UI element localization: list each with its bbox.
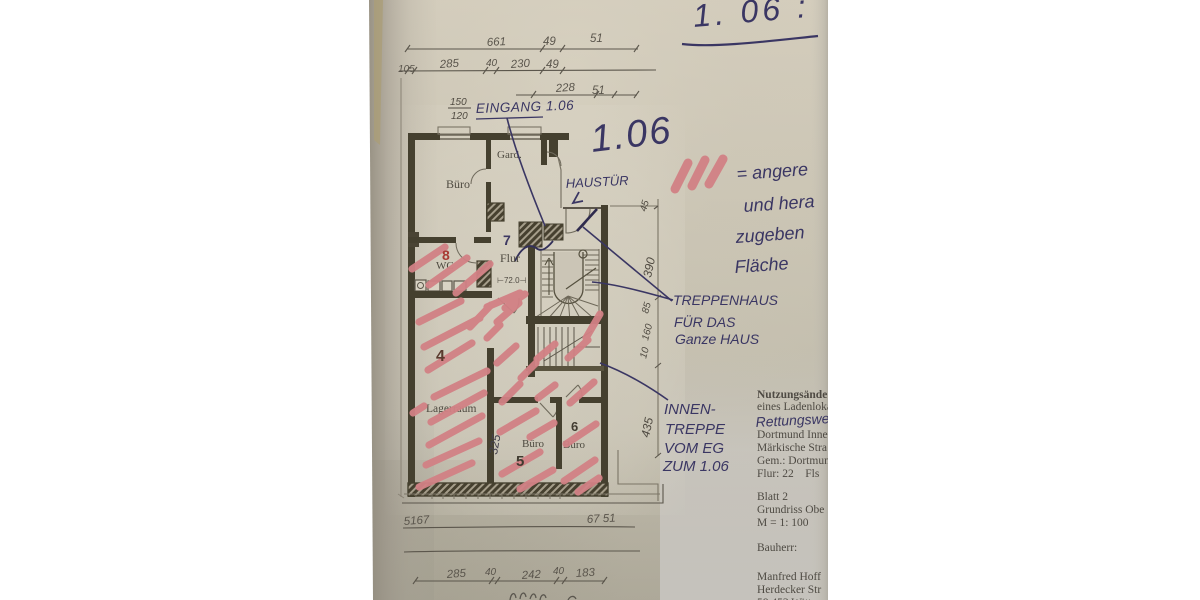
svg-text:5167: 5167 — [403, 514, 430, 528]
svg-text:M = 1: 100: M = 1: 100 — [757, 517, 809, 529]
svg-text:183: 183 — [575, 567, 596, 580]
svg-text:6: 6 — [571, 419, 578, 434]
svg-text:40: 40 — [486, 58, 498, 69]
svg-text:ZUM 1.06: ZUM 1.06 — [662, 458, 730, 475]
svg-text:FÜR DAS: FÜR DAS — [674, 313, 736, 330]
svg-text:49: 49 — [546, 59, 559, 71]
svg-text:242: 242 — [520, 569, 542, 582]
svg-text:5: 5 — [516, 453, 524, 470]
svg-text:40: 40 — [553, 566, 565, 577]
svg-text:Fläche: Fläche — [734, 253, 789, 277]
svg-text:4: 4 — [436, 348, 445, 365]
svg-text:Manfred Hoff: Manfred Hoff — [757, 571, 821, 583]
svg-text:150: 150 — [450, 97, 467, 108]
svg-text:⊢72.0⊣: ⊢72.0⊣ — [497, 276, 527, 285]
svg-text:TREPPE: TREPPE — [665, 421, 726, 438]
svg-text:7: 7 — [503, 232, 511, 248]
svg-text:120: 120 — [451, 111, 468, 122]
svg-text:Flur: Flur — [500, 251, 520, 265]
svg-text:105: 105 — [398, 64, 415, 75]
svg-text:eines Ladenloka: eines Ladenloka — [757, 401, 832, 413]
svg-text:Dortmund Inne: Dortmund Inne — [757, 429, 828, 441]
svg-text:285: 285 — [445, 568, 467, 581]
svg-text:Flur: 22 Fls: Flur: 22 Fls — [757, 468, 820, 480]
svg-text:VOM EG: VOM EG — [664, 440, 724, 457]
svg-text:Märkische Stra: Märkische Stra — [757, 442, 827, 454]
svg-text:230: 230 — [509, 58, 531, 71]
svg-text:TREPPENHAUS: TREPPENHAUS — [673, 292, 779, 308]
svg-text:40: 40 — [485, 567, 497, 578]
svg-text:285: 285 — [438, 58, 460, 71]
svg-text:Blatt 2: Blatt 2 — [757, 491, 788, 503]
svg-text:Bauherr:: Bauherr: — [757, 542, 797, 554]
svg-text:Büro: Büro — [446, 177, 470, 191]
svg-text:Grundriss Obe: Grundriss Obe — [757, 504, 824, 516]
svg-text:Herdecker Str: Herdecker Str — [757, 584, 821, 596]
svg-text:228: 228 — [554, 82, 576, 95]
svg-text:Büro: Büro — [522, 438, 545, 450]
svg-text:51: 51 — [590, 33, 603, 45]
svg-text:49: 49 — [543, 36, 556, 48]
svg-text:INNEN-: INNEN- — [664, 401, 716, 418]
svg-text:Gem.: Dortmun: Gem.: Dortmun — [757, 455, 830, 467]
svg-text:67 51: 67 51 — [587, 513, 616, 526]
svg-text:661: 661 — [487, 36, 507, 49]
svg-text:Nutzungsände: Nutzungsände — [757, 389, 827, 401]
svg-text:51: 51 — [592, 85, 605, 97]
svg-text:8: 8 — [442, 247, 450, 263]
svg-text:Ganze HAUS: Ganze HAUS — [675, 331, 760, 347]
